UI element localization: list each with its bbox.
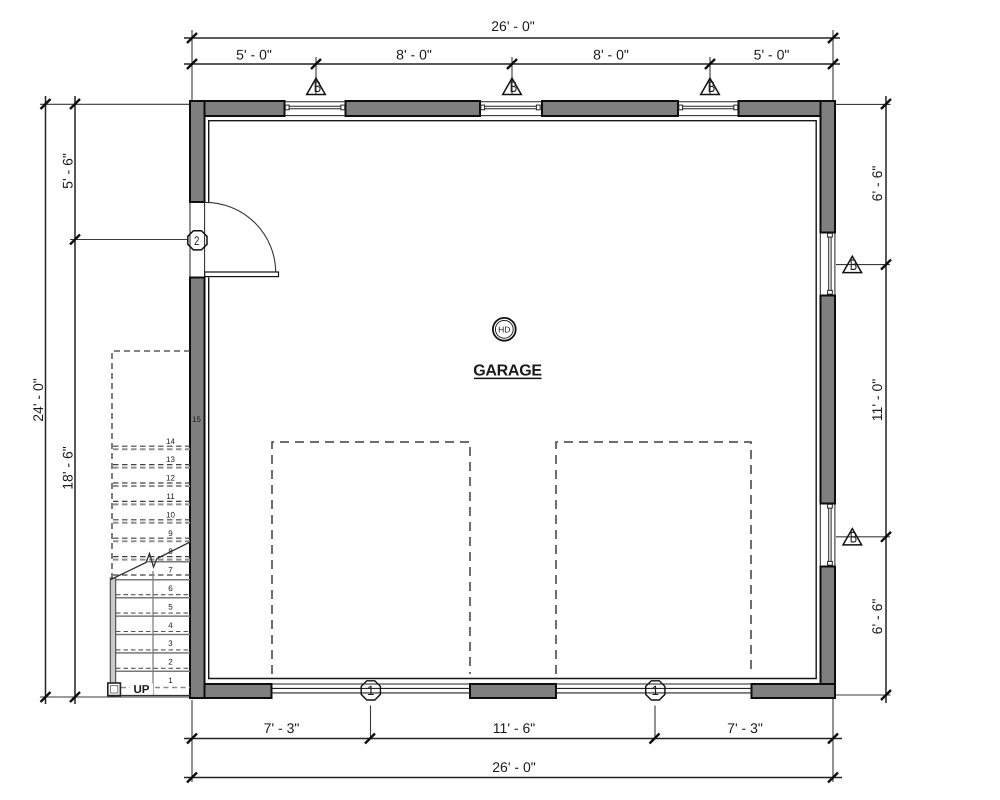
svg-text:26' - 0": 26' - 0" [491, 18, 534, 34]
svg-text:1: 1 [652, 683, 660, 698]
svg-text:HD: HD [498, 324, 510, 334]
svg-text:6' - 6": 6' - 6" [869, 166, 885, 202]
svg-text:14: 14 [166, 437, 175, 446]
svg-text:26' - 0": 26' - 0" [492, 759, 535, 775]
svg-text:3: 3 [168, 639, 173, 648]
svg-text:8' - 0": 8' - 0" [593, 47, 629, 63]
svg-text:UP: UP [134, 684, 150, 696]
svg-text:B: B [850, 257, 857, 274]
svg-text:1: 1 [168, 676, 173, 685]
svg-text:11' - 6": 11' - 6" [493, 720, 535, 736]
svg-text:5' - 0": 5' - 0" [754, 47, 790, 63]
svg-text:13: 13 [166, 455, 175, 464]
svg-text:5' - 0": 5' - 0" [236, 47, 272, 63]
svg-text:18' - 6": 18' - 6" [60, 446, 76, 489]
svg-text:5: 5 [168, 602, 173, 611]
svg-text:7' - 3": 7' - 3" [264, 720, 300, 736]
svg-text:4: 4 [168, 621, 173, 630]
svg-text:B: B [510, 79, 517, 96]
svg-text:2: 2 [168, 658, 173, 667]
svg-text:GARAGE: GARAGE [473, 363, 542, 380]
svg-text:2: 2 [194, 234, 199, 248]
svg-text:8' - 0": 8' - 0" [396, 47, 432, 63]
svg-text:6: 6 [168, 584, 173, 593]
svg-text:B: B [314, 79, 321, 96]
svg-text:7: 7 [168, 566, 173, 575]
svg-text:5' - 6": 5' - 6" [60, 153, 76, 189]
svg-text:8: 8 [168, 547, 173, 556]
svg-text:7' - 3": 7' - 3" [727, 720, 763, 736]
svg-text:6' - 6": 6' - 6" [869, 599, 885, 635]
svg-text:12: 12 [166, 474, 175, 483]
svg-text:1: 1 [367, 683, 375, 698]
svg-text:B: B [850, 529, 857, 546]
svg-text:B: B [708, 79, 715, 96]
svg-text:9: 9 [168, 529, 173, 538]
svg-text:10: 10 [166, 510, 175, 519]
svg-text:24' - 0": 24' - 0" [30, 378, 46, 421]
svg-text:15: 15 [192, 415, 201, 424]
svg-text:11: 11 [166, 492, 175, 501]
svg-text:11' - 0": 11' - 0" [869, 379, 885, 421]
